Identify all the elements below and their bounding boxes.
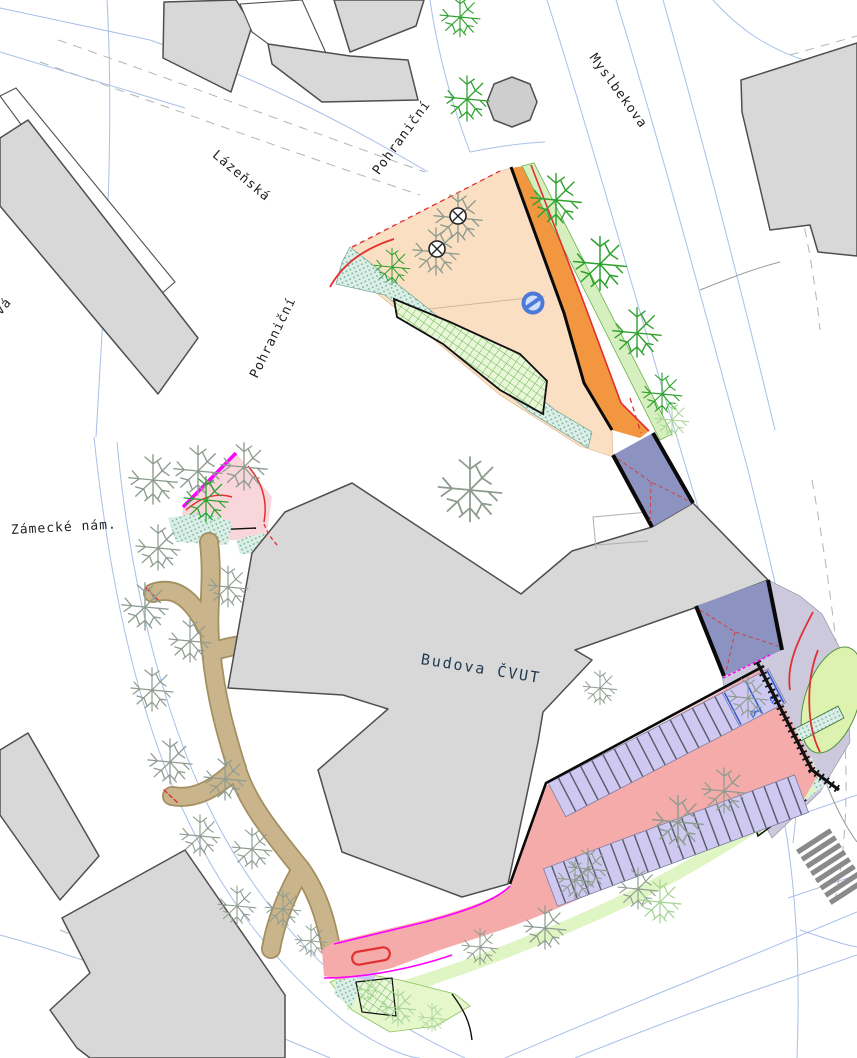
site-plan: ♿ ♿ (0, 0, 857, 1058)
buildings (0, 0, 857, 1058)
tree-removal-icon (450, 208, 466, 224)
pedestrian-crossing-icon (796, 828, 857, 905)
site-plan-canvas: ♿ ♿ (0, 0, 857, 1058)
tree-removal-icon (429, 241, 445, 257)
kiosk-octagon (487, 77, 537, 127)
no-entry-sign-icon (522, 292, 544, 314)
